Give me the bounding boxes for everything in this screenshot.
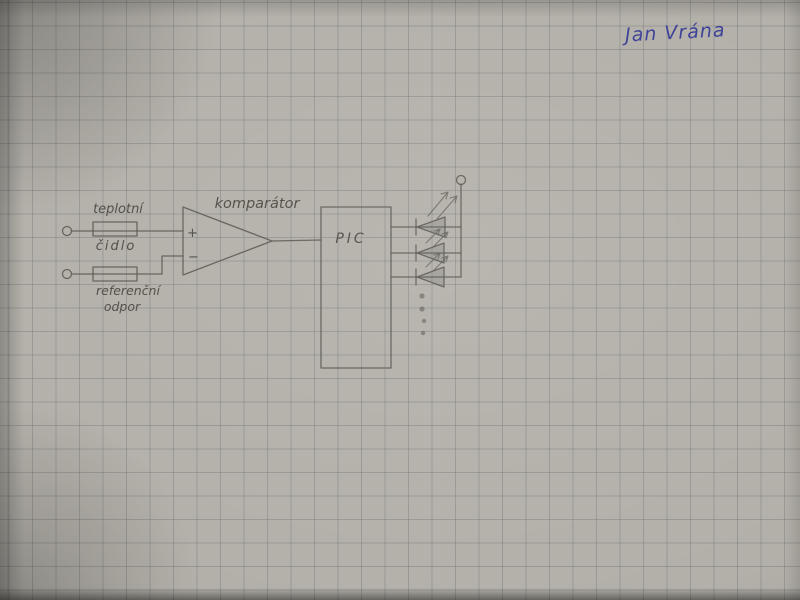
reference-input-branch: referenční odpor (63, 256, 184, 314)
led-output-section (391, 176, 466, 336)
input-terminal-bottom (63, 270, 72, 279)
ellipsis-dot (422, 319, 426, 323)
input-terminal-top (63, 227, 72, 236)
mcu-label: PIC (335, 231, 366, 247)
sensor-input-branch: teplotní čidlo (63, 202, 184, 254)
sensor-label-line1: teplotní (93, 202, 145, 217)
mcu-block: PIC (321, 207, 391, 368)
wire-comparator-output (272, 240, 321, 241)
ellipsis-dot (419, 306, 424, 311)
comparator: + − komparátor (183, 196, 321, 275)
led-triangle (417, 267, 444, 287)
graph-paper-photo: teplotní čidlo referenční odpor + − komp… (0, 0, 800, 600)
wire-reference (72, 256, 183, 274)
led-emission-arrow (428, 192, 448, 216)
ellipsis-dot (419, 293, 424, 298)
comparator-label: komparátor (215, 196, 301, 212)
led-triangle (417, 217, 445, 237)
reference-label-line2: odpor (104, 299, 141, 314)
supply-terminal (457, 176, 466, 185)
comparator-minus-input: − (188, 250, 199, 265)
sensor-label-line2: čidlo (96, 239, 137, 254)
more-outputs-ellipsis (419, 293, 426, 335)
resistor-sensor (93, 222, 137, 236)
led-emission-arrow (437, 196, 457, 219)
ellipsis-dot (421, 331, 425, 335)
comparator-plus-input: + (187, 226, 198, 241)
hand-drawn-schematic: teplotní čidlo referenční odpor + − komp… (0, 0, 800, 600)
reference-label-line1: referenční (96, 283, 161, 298)
